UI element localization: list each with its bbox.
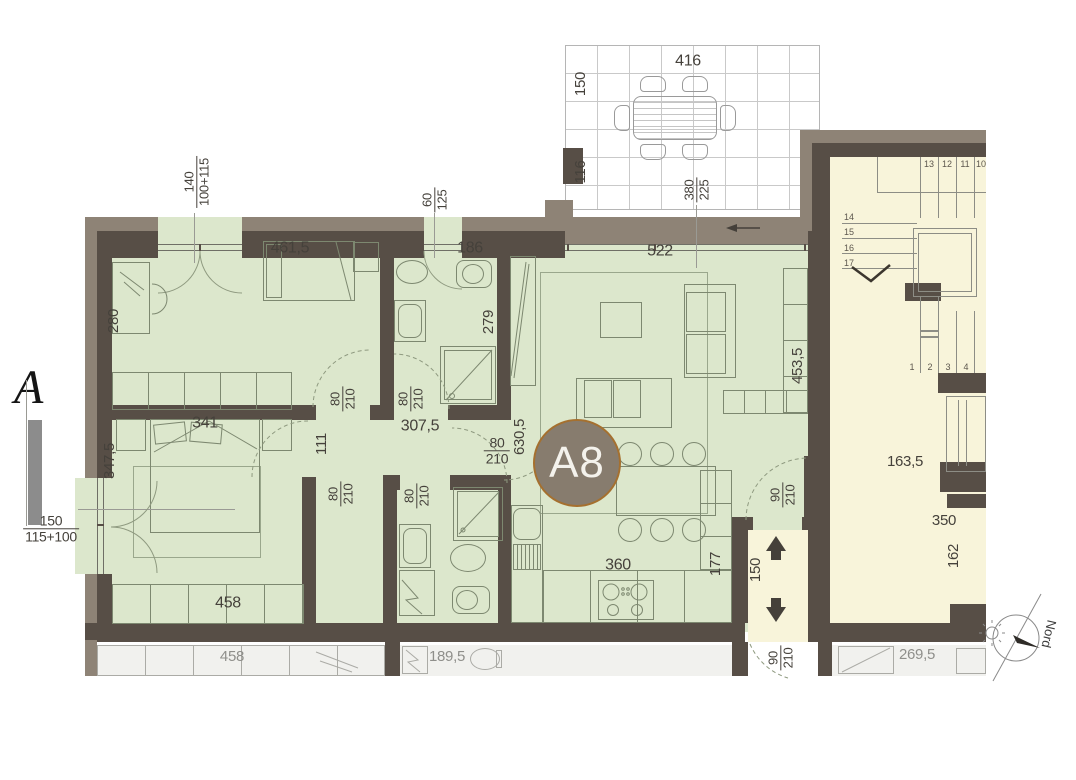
terrace-chair [682,144,708,160]
dim-stairhall: 163,5 [887,454,923,470]
stair-landing-line [842,268,917,269]
bidet [396,260,428,284]
wall-corridor-top-b [802,517,812,530]
section-marker-letter: A [14,360,43,415]
dining-chair [650,442,674,466]
window-sill-master [75,478,112,574]
step-number: 17 [844,258,854,268]
tv-unit [510,256,536,386]
step-number: 1 [909,362,914,372]
hob [598,580,654,620]
dim-window-bath: 60125 [420,188,449,213]
dim-living-left: 630,5 [512,419,528,455]
wardrobe [112,584,304,624]
neighbor-toilet-tank [496,650,502,668]
dining-chair [650,518,674,542]
terrace-chair [682,76,708,92]
shower-tray [444,350,492,400]
dim-living-glazing: 522 [647,244,673,261]
wardrobe [112,372,292,410]
toilet-bowl [456,590,478,610]
stair-break-double [920,330,939,332]
bidet [450,544,486,572]
section-marker-bar [28,420,42,525]
dim-bedroom-depth: 280 [106,309,122,333]
leader-line [434,213,435,258]
stair-break-line [877,157,878,192]
sofa-cushion [686,292,726,332]
wall-bottom [85,623,745,642]
dim-door: 80210 [396,387,425,412]
terrace-chair [640,144,666,160]
stair-tread [974,311,975,373]
floor-plan: 13 12 11 10 14 15 16 17 1 2 3 4 A [0,0,1076,780]
stair-break-line [877,192,986,193]
sink-basin [398,304,422,338]
dim-neighbor-wardrobe: 458 [220,649,244,665]
wall-stair-outer-top [800,130,986,143]
kitchen-drainer [513,544,541,570]
wall-stair-outer-left [800,130,812,231]
dim-window-bedroom: 140100+115 [182,156,211,208]
window-bedroom-mullion [199,244,201,251]
step-number: 13 [924,159,934,169]
dim-hall-depth: 111 [314,433,330,455]
dim-kitchen-counter: 177 [708,552,724,576]
stair-tread [938,297,939,373]
elevator-door-line [958,400,959,466]
step-number: 2 [927,362,932,372]
window-master [97,478,104,574]
dim-bath-width: 186 [457,241,483,258]
wall-hall-north-b [370,405,394,420]
stair-tread [920,157,921,218]
wall-bath2-west [383,477,397,632]
stair-tread [956,157,957,218]
leader-line [26,380,27,526]
neighbor-washing-machine [402,646,428,674]
wall-strip-stub-b [818,642,832,676]
wall-strip-taupe [85,640,97,676]
wall-corridor-top-a [732,517,753,530]
dim-living-right: 453,5 [790,348,806,384]
stair-break-double [920,336,939,338]
terrace-chair [614,105,630,131]
elevator-door-line [966,400,967,466]
stair-landing-line [842,253,917,254]
leader-line [696,205,697,268]
stair-landing-line [842,238,917,239]
wall-outer-left-a [85,231,97,478]
dining-chair [682,442,706,466]
step-number: 4 [963,362,968,372]
wall-hall-north-c [448,405,511,420]
sofa-cushion [584,380,612,418]
dining-chair [618,518,642,542]
dim-bath-depth: 279 [481,310,497,334]
dim-lift-depth: 162 [946,544,962,568]
step-number: 11 [960,159,969,169]
step-number: 16 [844,243,854,253]
wall-living-west [497,258,511,405]
bed-pillow [153,421,187,444]
wall-master-east [302,477,316,632]
dim-terrace-side-bottom: 116 [573,160,589,183]
elevator-cab [918,233,972,292]
wall-top-a [97,231,158,258]
sofa-cushion [686,334,726,374]
toilet-bowl [462,264,484,284]
dim-neighbor-bath: 189,5 [429,649,465,665]
terrace-chair [720,105,736,131]
dim-master-wardrobe: 458 [215,596,241,613]
stair-tread [974,157,975,218]
neighbor-wall [385,642,400,676]
compass-label: Nord [1039,619,1060,650]
terrace-table [633,96,717,140]
stair-tread [938,157,939,218]
stair-tread [956,311,957,373]
apartment-badge: A8 [533,419,621,507]
wall-stair-notch [950,604,986,623]
dim-master-depth: 347,5 [102,443,118,479]
dim-terrace-width: 416 [675,54,701,71]
wall-lift-niche-b [947,494,986,508]
wall-outer-top-terrace [565,217,818,244]
nightstand [353,242,379,272]
step-number: 15 [844,227,854,237]
stair-landing-line [842,223,917,224]
window-master-mullion [97,524,104,526]
wall-stair-top [812,143,986,157]
neighbor-fixture [956,648,986,674]
wall-bath2-north-a [383,475,400,490]
step-number: 3 [945,362,950,372]
nightstand [262,419,292,451]
dim-door: 80210 [402,484,431,509]
dim-lift-width: 350 [932,513,956,529]
neighbor-shower [838,646,894,674]
dim-door: 80210 [328,387,357,412]
dim-bedroom-width: 461,5 [271,241,310,258]
dim-terrace-door: 380225 [682,178,711,203]
entry-door-leaf [804,456,809,518]
dim-window-master: 150115+100 [23,513,79,544]
leader-line [78,509,235,510]
kitchen-sink [513,508,541,540]
wall-outer-top [85,217,565,231]
dim-door: 80210 [484,435,510,466]
corridor-floor [748,530,808,642]
wall-corridor-west [732,517,748,623]
dim-door: 80210 [326,482,355,507]
washing-machine [399,570,435,616]
dim-entry-door: 90210 [768,483,797,508]
dim-master-bed: 341 [192,416,218,433]
sofa-cushion [613,380,641,418]
wall-stair-left [812,143,830,623]
dim-kitchen-run: 360 [605,558,631,575]
step-number: 14 [844,212,854,222]
step-number: 12 [942,159,952,169]
dim-neighbor-right: 269,5 [899,647,935,663]
dim-corridor: 150 [748,558,764,582]
wall-stair-bottom [808,623,986,642]
dim-terrace-side-top: 150 [573,72,589,96]
sideboard [723,390,808,414]
dim-hall-width: 307,5 [401,419,440,436]
leader-line [194,213,195,263]
window-terrace-mullion [567,244,569,251]
compass-needle [1013,635,1040,648]
stair-tread [920,297,921,373]
sink-basin [403,528,427,564]
wall-strip-stub-a [732,642,748,676]
step-number: 10 [976,159,986,169]
nightstand [116,419,146,451]
coffee-table [600,302,642,338]
window-terrace-mullion [804,244,806,251]
wall-bed1-bath1 [380,258,394,420]
window-terrace-glazing [565,244,808,251]
dining-chair [618,442,642,466]
wall-stair-flight [938,373,986,393]
window-sill-bedroom [158,217,242,258]
shower-tray [457,491,499,537]
dim-entry-door: 90210 [766,646,795,671]
terrace-chair [640,76,666,92]
compass-icon [979,594,1041,681]
